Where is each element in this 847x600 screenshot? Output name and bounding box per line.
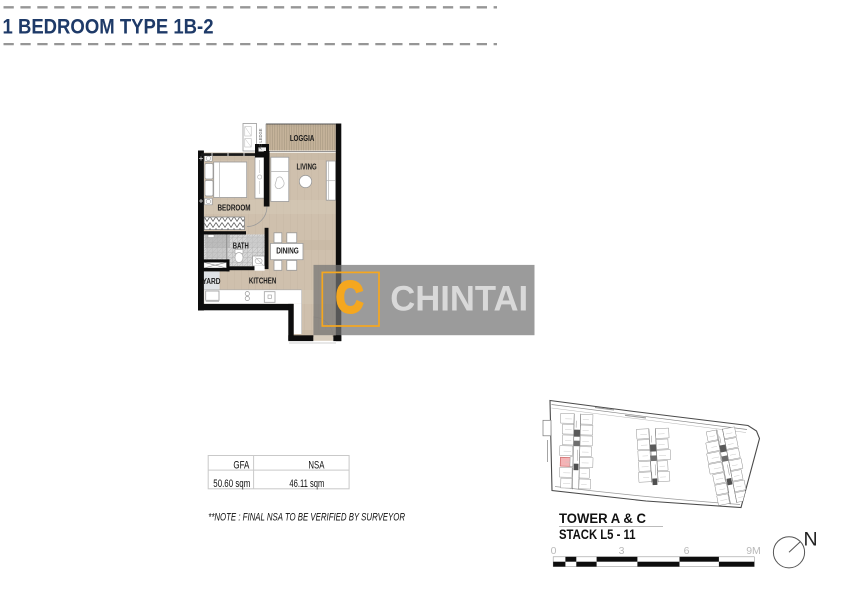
svg-text:3: 3 [619, 545, 625, 557]
svg-text:DINING: DINING [276, 245, 299, 255]
svg-text:1 BEDROOM TYPE 1B-2: 1 BEDROOM TYPE 1B-2 [3, 15, 214, 39]
svg-text:46.11 sqm: 46.11 sqm [289, 478, 324, 490]
svg-text:**NOTE : FINAL NSA TO BE VERIF: **NOTE : FINAL NSA TO BE VERIFIED BY SUR… [208, 511, 405, 523]
svg-text:9M: 9M [746, 545, 761, 557]
svg-text:CHINTAI: CHINTAI [390, 280, 528, 319]
svg-text:TOWER A & C: TOWER A & C [559, 511, 646, 526]
svg-text:YARD: YARD [203, 276, 221, 286]
svg-text:BEDROOM: BEDROOM [218, 202, 251, 212]
svg-text:LIVING: LIVING [297, 161, 317, 171]
svg-text:KITCHEN: KITCHEN [249, 275, 276, 285]
svg-text:0: 0 [551, 545, 557, 557]
svg-text:NSA: NSA [308, 459, 325, 471]
svg-text:6: 6 [684, 545, 690, 557]
svg-text:AC LEDGE: AC LEDGE [258, 128, 263, 149]
svg-text:STACK L5 - 11: STACK L5 - 11 [559, 527, 636, 542]
svg-text:BATH: BATH [233, 240, 249, 250]
svg-text:50.60 sqm: 50.60 sqm [213, 478, 250, 490]
svg-text:LOGGIA: LOGGIA [290, 133, 314, 143]
svg-text:N: N [804, 529, 818, 551]
svg-text:GFA: GFA [233, 459, 250, 471]
svg-text:C: C [336, 273, 363, 322]
